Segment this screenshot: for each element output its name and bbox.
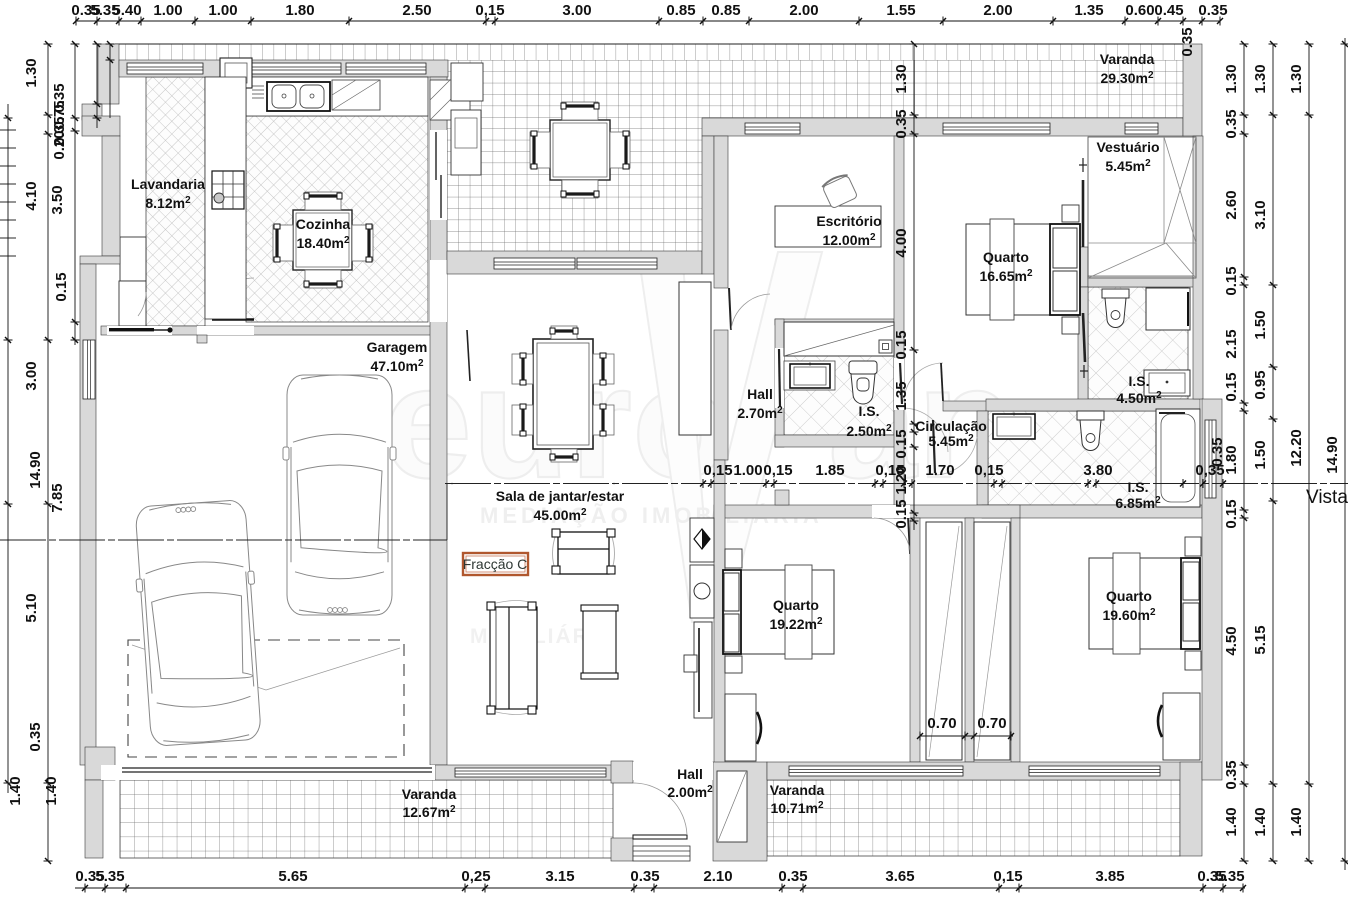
svg-text:2.00: 2.00 <box>789 2 818 19</box>
svg-text:Escritório: Escritório <box>816 213 881 229</box>
svg-text:0.35: 0.35 <box>630 868 659 885</box>
svg-text:1.40: 1.40 <box>1252 807 1269 836</box>
svg-text:0.35: 0.35 <box>1198 2 1227 19</box>
svg-text:14.90: 14.90 <box>27 451 44 489</box>
svg-text:1.35: 1.35 <box>893 381 910 410</box>
svg-text:0.15: 0.15 <box>1223 372 1240 401</box>
svg-text:29.30m2: 29.30m2 <box>1100 70 1153 86</box>
svg-text:0.45: 0.45 <box>1154 2 1183 19</box>
svg-text:45.00m2: 45.00m2 <box>533 507 586 523</box>
svg-text:1.35: 1.35 <box>1074 2 1103 19</box>
svg-text:2.60: 2.60 <box>1223 190 1240 219</box>
svg-text:1.55: 1.55 <box>886 2 915 19</box>
svg-text:Circulação: Circulação <box>915 418 987 434</box>
svg-text:19.22m2: 19.22m2 <box>769 616 822 632</box>
svg-text:1.80: 1.80 <box>285 2 314 19</box>
svg-text:12.67m2: 12.67m2 <box>402 804 455 820</box>
svg-text:0.15: 0.15 <box>1223 266 1240 295</box>
svg-text:5.40: 5.40 <box>112 2 141 19</box>
svg-text:Varanda: Varanda <box>770 782 825 798</box>
svg-text:Quarto: Quarto <box>983 249 1029 265</box>
svg-text:1.30: 1.30 <box>1288 64 1305 93</box>
svg-text:2.50m2: 2.50m2 <box>846 423 892 439</box>
svg-text:2.70m2: 2.70m2 <box>737 405 783 421</box>
svg-text:47.10m2: 47.10m2 <box>370 358 423 374</box>
svg-text:5.35: 5.35 <box>1215 868 1244 885</box>
svg-text:3.10: 3.10 <box>1252 200 1269 229</box>
svg-text:0.35: 0.35 <box>1223 109 1240 138</box>
svg-text:1.50: 1.50 <box>1252 440 1269 469</box>
svg-text:3.65: 3.65 <box>885 868 914 885</box>
svg-text:0.15: 0.15 <box>53 272 70 301</box>
svg-text:6.85m2: 6.85m2 <box>1115 495 1161 511</box>
svg-text:3.15: 3.15 <box>545 868 574 885</box>
svg-text:Quarto: Quarto <box>1106 588 1152 604</box>
svg-text:I.S.: I.S. <box>1127 479 1148 495</box>
svg-text:1.30: 1.30 <box>1223 64 1240 93</box>
svg-text:4.50: 4.50 <box>1223 626 1240 655</box>
svg-text:4.50m2: 4.50m2 <box>1116 390 1162 406</box>
svg-text:0.15: 0.15 <box>1223 499 1240 528</box>
svg-text:Quarto: Quarto <box>773 597 819 613</box>
svg-text:1.30: 1.30 <box>23 58 40 87</box>
svg-text:Vestuário: Vestuário <box>1096 139 1159 155</box>
svg-text:Hall: Hall <box>747 386 773 402</box>
svg-text:Cozinha: Cozinha <box>296 216 351 232</box>
svg-text:8.12m2: 8.12m2 <box>145 195 191 211</box>
svg-text:3.80: 3.80 <box>1083 462 1112 479</box>
svg-text:0.15: 0.15 <box>893 499 910 528</box>
svg-text:5.15: 5.15 <box>1252 625 1269 654</box>
svg-text:1.40: 1.40 <box>1288 807 1305 836</box>
svg-text:12.00m2: 12.00m2 <box>822 232 875 248</box>
svg-text:I.S.: I.S. <box>858 403 879 419</box>
svg-text:0.35: 0.35 <box>1223 760 1240 789</box>
svg-text:1.40: 1.40 <box>7 776 24 805</box>
svg-text:3.00: 3.00 <box>23 361 40 390</box>
svg-text:10.71m2: 10.71m2 <box>770 800 823 816</box>
svg-text:0,15: 0,15 <box>974 462 1003 479</box>
svg-text:0.70: 0.70 <box>977 715 1006 732</box>
svg-text:2.00: 2.00 <box>983 2 1012 19</box>
svg-text:0.70: 0.70 <box>927 715 956 732</box>
svg-text:2.15: 2.15 <box>1223 329 1240 358</box>
svg-text:Garagem: Garagem <box>367 339 428 355</box>
svg-text:1.50: 1.50 <box>1252 310 1269 339</box>
svg-text:12.20: 12.20 <box>1288 429 1305 467</box>
svg-text:0.35: 0.35 <box>1179 27 1196 56</box>
svg-text:1.85: 1.85 <box>815 462 844 479</box>
svg-text:5.65: 5.65 <box>278 868 307 885</box>
svg-text:2.50: 2.50 <box>402 2 431 19</box>
svg-text:Hall: Hall <box>677 766 703 782</box>
svg-text:7.85: 7.85 <box>49 483 66 512</box>
svg-text:0,15: 0,15 <box>763 462 792 479</box>
svg-text:1.40: 1.40 <box>1223 807 1240 836</box>
svg-text:0.35: 0.35 <box>778 868 807 885</box>
svg-text:Fracção C: Fracção C <box>463 556 528 572</box>
svg-text:I.S.: I.S. <box>1128 373 1149 389</box>
svg-text:Sala de jantar/estar: Sala de jantar/estar <box>496 488 625 504</box>
svg-text:5.45m2: 5.45m2 <box>1105 158 1151 174</box>
svg-text:Vista: Vista <box>1306 487 1348 508</box>
svg-text:Lavandaria: Lavandaria <box>131 176 205 192</box>
svg-text:0.20: 0.20 <box>51 130 68 159</box>
svg-text:5.45m2: 5.45m2 <box>928 433 974 449</box>
svg-text:0,15: 0,15 <box>993 868 1022 885</box>
svg-text:4.10: 4.10 <box>23 181 40 210</box>
svg-text:1.30: 1.30 <box>1252 64 1269 93</box>
svg-text:0.60: 0.60 <box>1125 2 1154 19</box>
svg-text:0,15: 0,15 <box>475 2 504 19</box>
svg-text:18.40m2: 18.40m2 <box>296 235 349 251</box>
svg-text:0,25: 0,25 <box>461 868 490 885</box>
svg-text:0,35: 0,35 <box>1195 462 1224 479</box>
svg-text:0.85: 0.85 <box>666 2 695 19</box>
svg-text:1.00: 1.00 <box>153 2 182 19</box>
svg-text:0,15: 0,15 <box>875 462 904 479</box>
svg-text:1.40: 1.40 <box>43 776 60 805</box>
svg-text:3.50: 3.50 <box>49 185 66 214</box>
svg-text:0.15: 0.15 <box>893 429 910 458</box>
svg-text:1.70: 1.70 <box>925 462 954 479</box>
svg-text:Varanda: Varanda <box>1100 51 1155 67</box>
svg-text:5.10: 5.10 <box>23 593 40 622</box>
svg-text:0.15: 0.15 <box>893 330 910 359</box>
svg-text:2.00m2: 2.00m2 <box>667 784 713 800</box>
svg-text:0,15: 0,15 <box>703 462 732 479</box>
svg-text:1.00: 1.00 <box>208 2 237 19</box>
svg-text:14.90: 14.90 <box>1324 436 1341 474</box>
svg-text:16.65m2: 16.65m2 <box>979 268 1032 284</box>
svg-text:Varanda: Varanda <box>402 786 457 802</box>
svg-text:0.35: 0.35 <box>27 722 44 751</box>
svg-text:4.00: 4.00 <box>893 228 910 257</box>
svg-text:0.35: 0.35 <box>893 109 910 138</box>
svg-text:0.85: 0.85 <box>711 2 740 19</box>
svg-text:1.30: 1.30 <box>893 64 910 93</box>
svg-text:2.10: 2.10 <box>703 868 732 885</box>
svg-text:3.85: 3.85 <box>1095 868 1124 885</box>
svg-text:5.35: 5.35 <box>95 868 124 885</box>
svg-text:19.60m2: 19.60m2 <box>1102 607 1155 623</box>
svg-text:3.00: 3.00 <box>562 2 591 19</box>
svg-text:1.00: 1.00 <box>733 462 762 479</box>
svg-text:0.95: 0.95 <box>1252 370 1269 399</box>
